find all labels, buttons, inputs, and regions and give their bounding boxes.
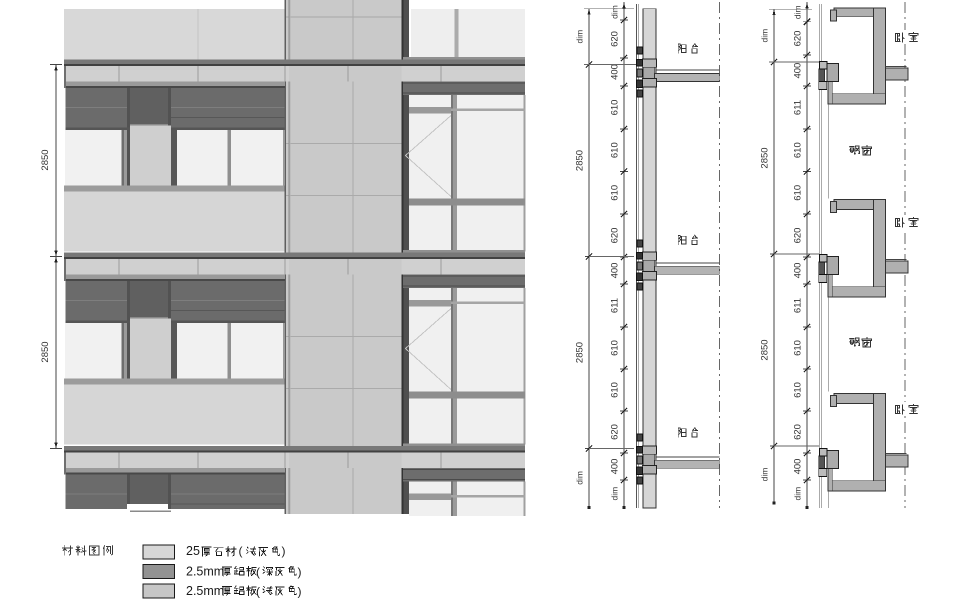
svg-text:620: 620: [793, 31, 804, 47]
svg-text:): ): [298, 565, 302, 579]
svg-text:dim: dim: [760, 468, 770, 482]
svg-text:620: 620: [793, 424, 804, 440]
svg-text:400: 400: [610, 64, 621, 80]
svg-text:610: 610: [610, 340, 621, 356]
svg-text:dim: dim: [610, 5, 620, 19]
svg-text:2850: 2850: [575, 342, 586, 363]
svg-text:dim: dim: [793, 5, 803, 19]
svg-text:610: 610: [793, 340, 804, 356]
svg-text:611: 611: [793, 298, 804, 313]
svg-text:611: 611: [610, 298, 621, 313]
svg-text:611: 611: [793, 100, 804, 115]
svg-text:610: 610: [793, 142, 804, 158]
svg-text:(: (: [256, 584, 260, 598]
svg-text:620: 620: [610, 424, 621, 440]
svg-text:(: (: [239, 544, 243, 558]
svg-text:620: 620: [610, 228, 621, 244]
svg-text:400: 400: [610, 263, 621, 279]
svg-text:dim: dim: [793, 487, 803, 501]
svg-text:dim: dim: [575, 471, 585, 485]
svg-text:610: 610: [793, 382, 804, 398]
svg-text:dim: dim: [760, 29, 770, 43]
svg-text:620: 620: [793, 228, 804, 244]
svg-text:2850: 2850: [40, 341, 51, 362]
svg-text:610: 610: [610, 142, 621, 158]
svg-text:610: 610: [793, 185, 804, 201]
svg-text:dim: dim: [575, 30, 585, 44]
svg-text:): ): [282, 544, 286, 558]
svg-text:620: 620: [610, 31, 621, 47]
svg-text:610: 610: [610, 100, 621, 116]
svg-text:610: 610: [610, 382, 621, 398]
svg-text:dim: dim: [610, 487, 620, 501]
svg-text:400: 400: [610, 459, 621, 475]
svg-text:2850: 2850: [760, 339, 771, 360]
svg-text:2850: 2850: [760, 147, 771, 168]
svg-text:2850: 2850: [40, 149, 51, 170]
svg-text:400: 400: [793, 263, 804, 279]
svg-text:2850: 2850: [575, 150, 586, 171]
svg-text:400: 400: [793, 459, 804, 475]
svg-text:(: (: [256, 565, 260, 579]
svg-text:25: 25: [186, 544, 200, 558]
svg-text:2.5mm: 2.5mm: [186, 565, 224, 579]
svg-text:2.5mm: 2.5mm: [186, 584, 224, 598]
svg-text:400: 400: [793, 63, 804, 79]
svg-text:610: 610: [610, 185, 621, 201]
svg-text:): ): [298, 584, 302, 598]
